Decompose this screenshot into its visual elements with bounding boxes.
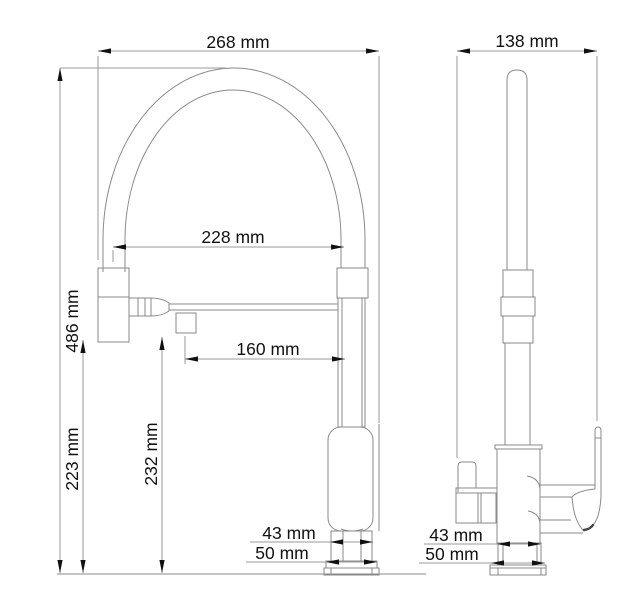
spray-nozzle-cylinder [129,298,151,316]
dim-label-base-top-width: 43 mm [262,523,315,543]
side-spout-pipe [507,70,527,270]
side-base-neck-shading [503,543,537,565]
arrowhead [364,559,377,564]
dim-label-overall-depth: 138 mm [495,31,558,51]
drawing-canvas: 268 mm 138 mm 486 mm 228 mm 160 mm 223 m… [0,0,635,600]
dim-label-spout-reach: 228 mm [201,227,264,247]
spray-holder-lip [456,488,497,493]
handle-arm-bend [527,476,540,489]
front-view [57,68,426,575]
dim-label-overall-width: 268 mm [206,32,269,52]
handle-lever-left [572,497,584,531]
dim-line-spout-reach [113,247,344,262]
spray-nozzle-rings [138,298,145,316]
base-neck-shading [343,531,361,561]
dim-label-outlet-reach: 160 mm [236,339,299,359]
spray-head-body [98,297,129,342]
arrowhead [360,539,373,544]
dim-label-base-depth: 50 mm [425,544,478,564]
side-body [497,449,540,543]
handle-lever-right [593,490,601,525]
side-body-lip [495,445,542,449]
arrowhead [57,560,62,573]
arrowhead [331,244,344,249]
base-neck [331,531,372,561]
arrowhead [584,48,597,53]
spray-holder-mount [456,493,496,523]
side-column [505,343,530,445]
dim-label-spray-head-height: 223 mm [62,427,82,490]
mixer-body [328,427,373,531]
arrowhead [159,560,164,573]
side-outlet-bend [528,511,540,523]
dim-line-overall-height [60,68,226,573]
arrowhead [326,559,339,564]
side-view [456,70,601,575]
spray-head-collar [98,268,129,297]
faucet-dimension-drawing: 268 mm 138 mm 486 mm 228 mm 160 mm 223 m… [0,0,635,600]
side-base-plate-line [490,568,546,575]
handle-pivot-top [572,489,595,497]
dim-label-outlet-height: 232 mm [141,422,161,485]
side-outlet-arm [540,520,583,533]
spray-nozzle-cone [151,298,169,316]
arrowhead [80,560,85,573]
side-collar-upper [503,270,533,297]
arrowhead [113,244,126,249]
faucet-column-shading [342,298,362,427]
dim-label-overall-height: 486 mm [62,289,82,352]
handle-blade [595,427,601,490]
dim-label-base-width: 50 mm [255,543,308,563]
support-rod [169,304,338,310]
arrowhead [330,539,343,544]
arrowhead [98,48,111,53]
arrowhead [159,337,164,350]
handle-lever-tip [584,525,593,530]
side-collar-band [501,297,535,316]
side-collar-lower [503,316,533,343]
arrowhead [528,541,541,546]
outlet-block [176,313,196,333]
arrowhead [185,356,198,361]
arrowhead [366,48,379,53]
arrowhead [57,68,62,81]
spray-holder-divider [478,493,481,523]
arrowhead [457,48,470,53]
dim-label-base-top-depth: 43 mm [429,525,482,545]
spout-base-collar [337,268,368,298]
